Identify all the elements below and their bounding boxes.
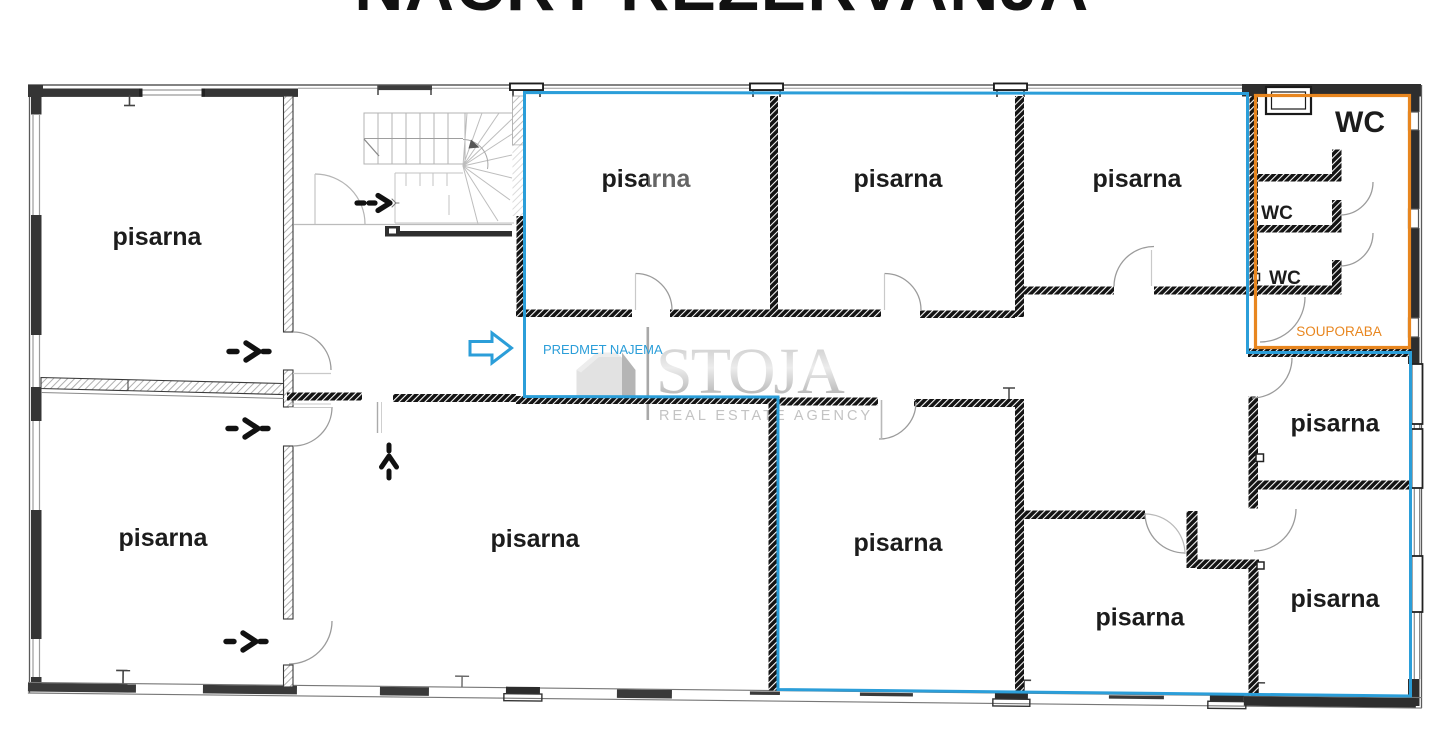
svg-text:pisarna: pisarna bbox=[113, 223, 203, 251]
svg-text:WC: WC bbox=[1269, 268, 1301, 289]
svg-text:NAČRT REZERVANJA: NAČRT REZERVANJA bbox=[354, 0, 1090, 25]
svg-text:pisarna: pisarna bbox=[119, 524, 209, 552]
svg-text:pisarna: pisarna bbox=[854, 529, 944, 557]
svg-text:SOUPORABA: SOUPORABA bbox=[1296, 324, 1382, 339]
svg-text:pisarna: pisarna bbox=[1093, 165, 1183, 193]
svg-text:pisarna: pisarna bbox=[1291, 585, 1381, 613]
svg-text:WC: WC bbox=[1335, 106, 1385, 139]
svg-text:pisarna: pisarna bbox=[1291, 410, 1381, 438]
svg-text:pisarna: pisarna bbox=[1096, 604, 1186, 632]
svg-text:PREDMET NAJEMA: PREDMET NAJEMA bbox=[543, 342, 663, 357]
svg-text:pisarna: pisarna bbox=[491, 525, 581, 553]
svg-text:REAL ESTATE AGENCY: REAL ESTATE AGENCY bbox=[659, 408, 873, 424]
svg-text:pisarna: pisarna bbox=[854, 165, 944, 193]
svg-text:WC: WC bbox=[1261, 203, 1293, 224]
